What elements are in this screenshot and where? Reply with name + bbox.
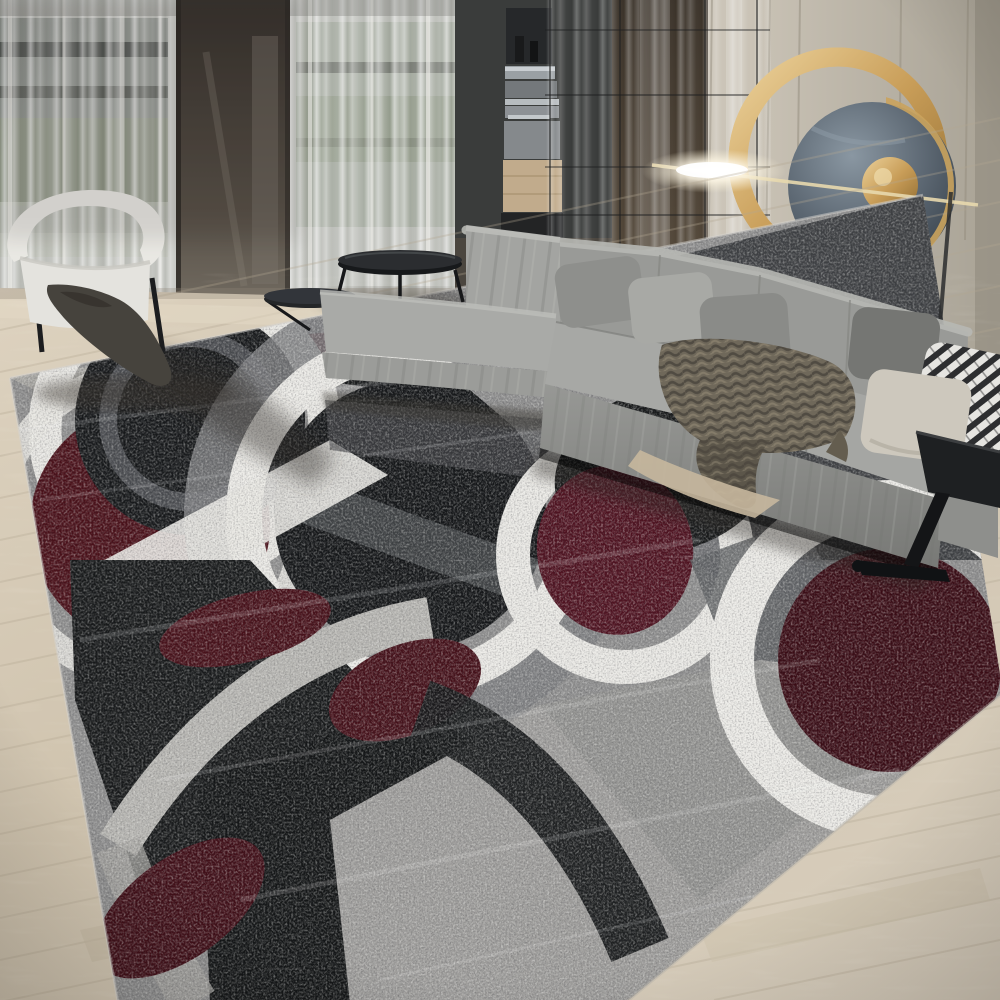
- living-room-product-photo: [0, 0, 1000, 1000]
- corner-shade: [0, 0, 300, 240]
